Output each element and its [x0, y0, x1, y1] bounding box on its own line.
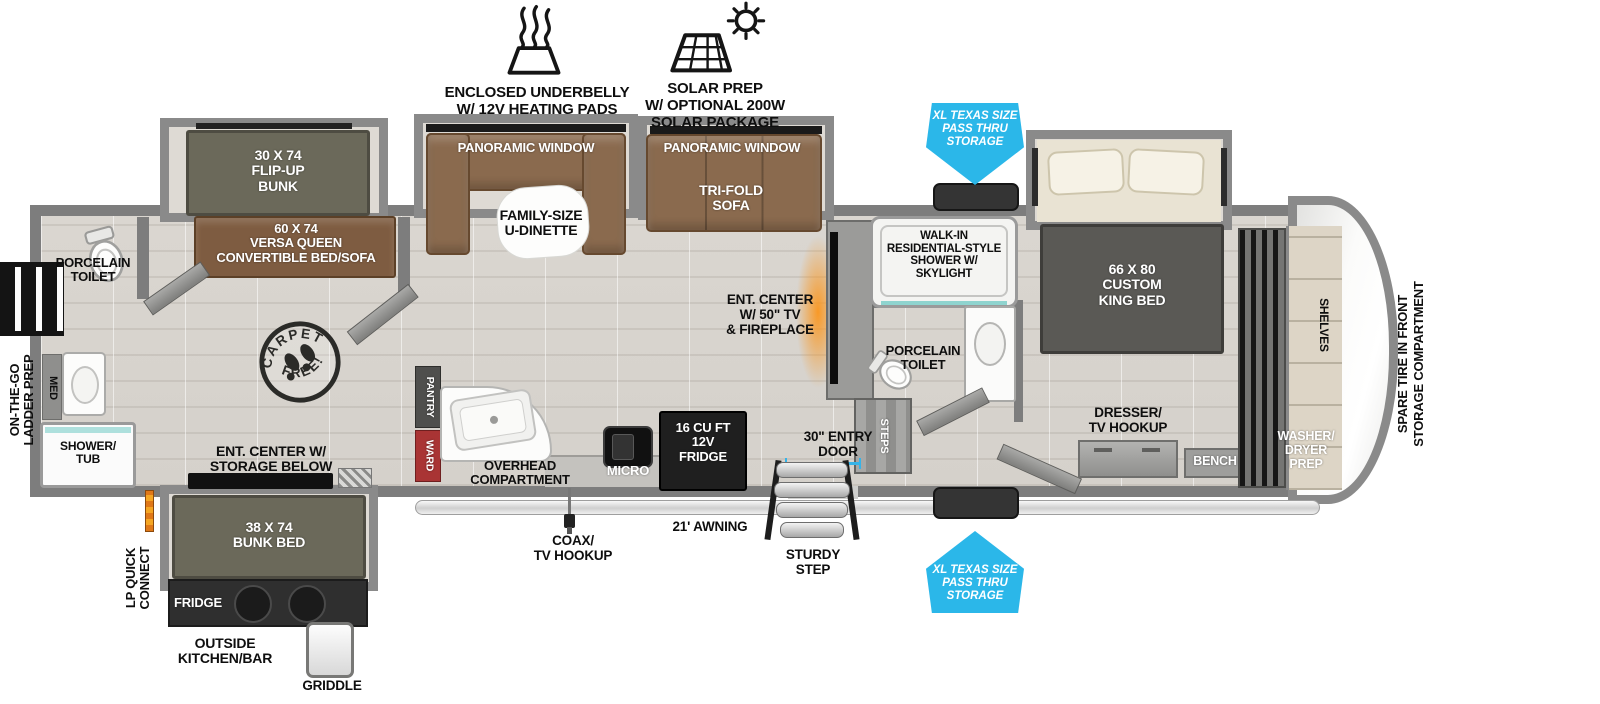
pass-thru-label-top: XL TEXAS SIZE PASS THRU STORAGE — [926, 110, 1024, 150]
step-tread-4 — [780, 522, 844, 538]
shower-glass-edge — [881, 301, 1007, 305]
king-bed-label: 66 X 80 CUSTOM KING BED — [1067, 262, 1197, 308]
dresser-handle-1 — [1094, 448, 1112, 452]
micro-label: MICRO — [598, 464, 658, 478]
floorplan-canvas: ENCLOSED UNDERBELLY W/ 12V HEATING PADS … — [0, 0, 1600, 704]
ent-center-storage-label: ENT. CENTER W/ STORAGE BELOW — [191, 444, 351, 475]
bath-vanity — [964, 306, 1016, 402]
step-tread-2 — [774, 482, 850, 498]
solar-prep-icon — [666, 0, 770, 80]
dinette-window — [426, 124, 626, 132]
outside-fridge-label: FRIDGE — [170, 596, 232, 610]
coax-connector — [564, 514, 575, 528]
coax-hookup-icon — [564, 488, 576, 534]
griddle-label: GRIDDLE — [290, 679, 374, 694]
washer-dryer-label: WASHER/ DRYER PREP — [1260, 430, 1352, 471]
mid-toilet-label: PORCELAIN TOILET — [877, 344, 969, 373]
coax-cable — [568, 488, 571, 516]
coax-label: COAX/ TV HOOKUP — [513, 534, 633, 564]
panoramic-window-label-2: PANORAMIC WINDOW — [638, 141, 826, 155]
underbelly-label: ENCLOSED UNDERBELLY W/ 12V HEATING PADS — [437, 84, 637, 118]
ward-label: WARD — [422, 431, 435, 481]
solar-label: SOLAR PREP W/ OPTIONAL 200W SOLAR PACKAG… — [615, 80, 815, 131]
dinette-label: FAMILY-SIZE U-DINETTE — [466, 208, 616, 239]
versa-queen-label: 60 X 74 VERSA QUEEN CONVERTIBLE BED/SOFA — [198, 222, 394, 265]
shower-tub-label: SHOWER/ TUB — [48, 440, 128, 466]
bedroom-window-left — [1032, 148, 1038, 206]
step-tread-1 — [776, 462, 848, 478]
tri-fold-sofa-label: TRI-FOLD SOFA — [671, 183, 791, 214]
bedroom-window-right — [1221, 148, 1227, 206]
flip-up-bunk-label: 30 X 74 FLIP-UP BUNK — [208, 148, 348, 194]
pass-thru-label-bottom: XL TEXAS SIZE PASS THRU STORAGE — [926, 564, 1024, 604]
ent-center-tv-strip — [188, 473, 333, 489]
med-cabinet-label: MED — [45, 368, 59, 408]
microwave-icon — [603, 426, 653, 468]
awning-rail — [415, 500, 1320, 515]
tub-glass-edge — [45, 427, 131, 433]
ent-center-tv-label: ENT. CENTER W/ 50" TV & FIREPLACE — [700, 293, 840, 338]
bench-label: BENCH — [1184, 455, 1246, 469]
griddle-icon — [306, 622, 354, 678]
dresser-handle-2 — [1142, 448, 1160, 452]
bunk-bed-label: 38 X 74 BUNK BED — [194, 520, 344, 551]
pass-thru-arrow-top: XL TEXAS SIZE PASS THRU STORAGE — [926, 103, 1024, 185]
pass-thru-hatch-top — [933, 183, 1019, 211]
bunk-slide-window — [196, 123, 352, 129]
burner-icon-1 — [234, 585, 272, 623]
ladder-prep-label: ON-THE-GO LADDER PREP — [8, 340, 42, 460]
pass-thru-hatch-bottom — [933, 487, 1019, 519]
entry-door-label: 30" ENTRY DOOR — [780, 430, 896, 460]
awning-label: 21' AWNING — [650, 520, 770, 535]
dresser-label: DRESSER/ TV HOOKUP — [1063, 406, 1193, 436]
rear-bath-sink — [62, 352, 106, 416]
fridge-12v-label: 16 CU FT 12V FRIDGE — [663, 421, 743, 464]
spare-tire-label: SPARE TIRE IN FRONT STORAGE COMPARTMENT — [1395, 252, 1429, 476]
pillow-right — [1127, 148, 1205, 196]
outside-kitchen-label: OUTSIDE KITCHEN/BAR — [155, 636, 295, 667]
dresser — [1078, 440, 1178, 478]
pass-thru-arrow-bottom: XL TEXAS SIZE PASS THRU STORAGE — [926, 531, 1024, 613]
sink-bowl — [71, 366, 99, 404]
overhead-compartment-label: OVERHEAD COMPARTMENT — [450, 459, 590, 488]
walk-in-shower-label: WALK-IN RESIDENTIAL-STYLE SHOWER W/ SKYL… — [872, 230, 1016, 281]
pantry-label: PANTRY — [421, 368, 435, 426]
burner-icon-2 — [288, 585, 326, 623]
rear-toilet-label: PORCELAIN TOILET — [47, 256, 139, 285]
shelves-label: SHELVES — [1314, 285, 1330, 365]
lp-quick-connect-label: LP QUICK CONNECT — [124, 518, 156, 638]
heating-pads-icon — [488, 2, 580, 82]
step-tread-3 — [776, 502, 848, 518]
vanity-sink — [974, 322, 1006, 366]
microwave-door — [612, 434, 634, 460]
sturdy-step-label: STURDY STEP — [767, 548, 859, 578]
sturdy-step-icon — [768, 458, 856, 544]
panoramic-window-label-1: PANORAMIC WINDOW — [432, 141, 620, 155]
pillow-left — [1047, 148, 1125, 196]
